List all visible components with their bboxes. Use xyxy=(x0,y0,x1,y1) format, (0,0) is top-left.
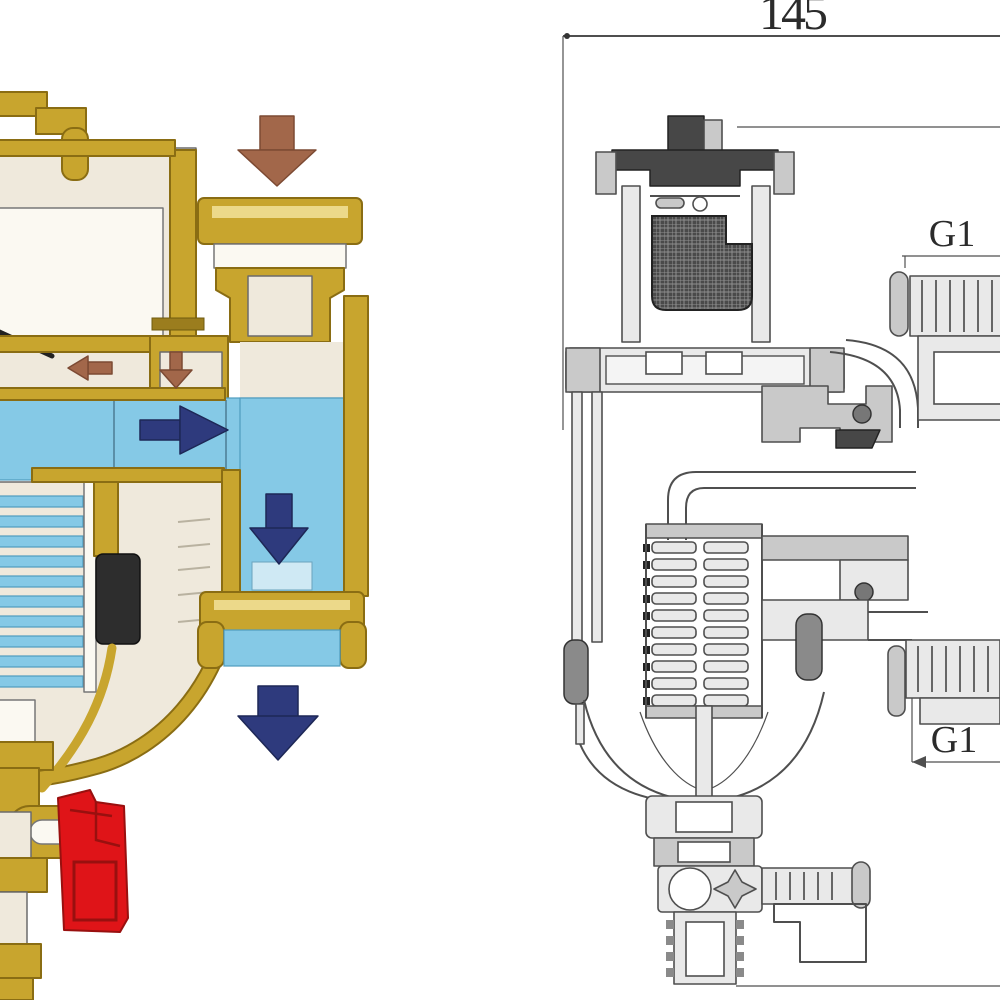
drain-handle-bracket xyxy=(774,904,866,962)
vent-wall-right xyxy=(752,186,770,342)
outlet-nut xyxy=(200,592,364,634)
screw-upper xyxy=(853,405,871,423)
inlet-flow-arrow xyxy=(238,116,316,186)
upper-port: G1 xyxy=(890,213,1000,420)
outer-brass-wall xyxy=(344,296,368,596)
drawing-funnel xyxy=(584,692,824,802)
diagram-svg: 145 xyxy=(0,0,1000,1000)
magnet-bar xyxy=(96,554,140,644)
drain-handle xyxy=(58,790,128,932)
outlet-tab-left xyxy=(198,622,224,668)
vent-cap-band xyxy=(0,140,175,156)
vent-ear-left xyxy=(596,152,616,194)
vent-float xyxy=(652,216,752,310)
screw-lower xyxy=(855,583,873,601)
inlet-insert xyxy=(214,244,346,268)
overall-dimension-label: 145 xyxy=(759,0,827,40)
vent-wall-left xyxy=(622,186,640,342)
cutaway-illustration xyxy=(0,92,368,1000)
lower-port-stud xyxy=(888,646,905,716)
inlet-nut xyxy=(198,198,362,244)
screenshot-canvas: 145 xyxy=(0,0,1000,1000)
lower-port: G1 xyxy=(888,640,1000,768)
left-seal-lug xyxy=(564,640,588,704)
valve-ball xyxy=(669,868,711,910)
technical-drawing: 145 xyxy=(563,0,1000,986)
inlet-window xyxy=(248,276,312,336)
air-vent-chamber xyxy=(0,92,228,400)
outlet-tab-right xyxy=(340,622,366,668)
outlet-valve-insert xyxy=(252,562,312,590)
vent-ear-right xyxy=(774,152,794,194)
lower-port-thread xyxy=(906,640,1000,698)
drawing-air-vent xyxy=(596,116,794,342)
outlet-water xyxy=(224,630,340,666)
center-tube xyxy=(696,706,712,798)
separator-element xyxy=(643,524,762,718)
channel-bottom-band xyxy=(32,468,224,482)
right-valve-internals xyxy=(762,340,928,680)
vent-cap-plate xyxy=(612,150,778,186)
channel-top-band xyxy=(0,388,225,400)
inlet-nut-highlight xyxy=(212,206,348,218)
upper-port-size-label: G1 xyxy=(929,213,975,255)
right-seal-lug xyxy=(796,614,822,680)
vent-stem xyxy=(668,116,704,152)
lower-port-size-label: G1 xyxy=(931,719,977,761)
outlet-flow-arrow xyxy=(238,686,318,760)
outlet-nut-highlight xyxy=(214,600,350,610)
inlet-union xyxy=(198,198,362,342)
drawing-drain-valve xyxy=(646,796,1000,986)
air-vent-right-wall xyxy=(170,150,196,342)
upper-port-thread xyxy=(910,276,1000,336)
elbow-interior xyxy=(240,342,344,402)
float-block xyxy=(0,208,163,336)
upper-port-stud xyxy=(890,272,908,336)
knurl-marking xyxy=(152,318,204,330)
channel-inner-wall xyxy=(222,470,240,600)
